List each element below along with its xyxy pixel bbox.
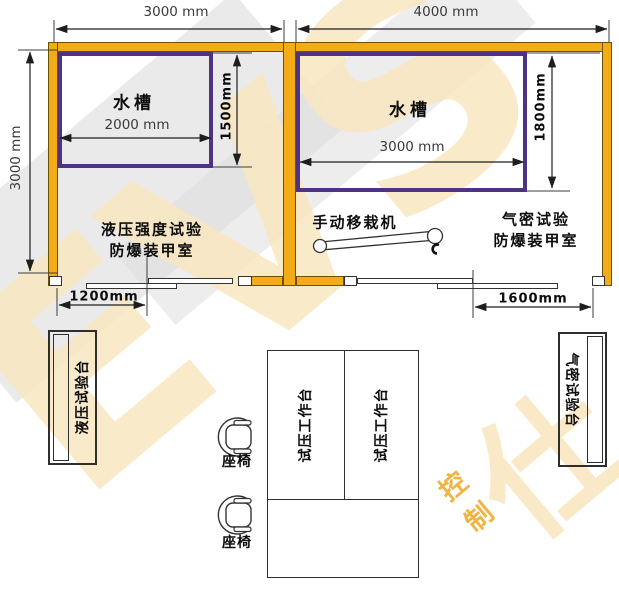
tank-left-label: 水槽 [113, 89, 155, 114]
dim-door-left: 1200mm [69, 290, 138, 305]
tank-right-dimensions [300, 53, 600, 191]
room-right-name-line1: 气密试验 [502, 209, 570, 230]
dim-door-right: 1600mm [498, 292, 567, 307]
dim-tank-right-width: 3000 mm [380, 139, 445, 155]
dim-room-left-height: 3000 mm [8, 126, 24, 191]
floor-plan-diagram: EVS 威仕 控制 [0, 0, 619, 589]
chair-bottom-label: 座椅 [222, 532, 252, 552]
door-left-dimension [57, 258, 147, 316]
worktable-right-label: 试压工作台 [371, 388, 391, 463]
worktable-left-label: 试压工作台 [295, 388, 315, 463]
bench-left-label: 液压试验台 [72, 360, 92, 435]
chair-bottom [218, 496, 251, 534]
tank-right-label: 水槽 [389, 96, 431, 121]
chair-top-label: 座椅 [222, 451, 252, 471]
dim-tank-left-width: 2000 mm [105, 117, 170, 133]
room-left-name-line1: 液压强度试验 [101, 219, 203, 240]
top-width-dimensions [54, 20, 609, 42]
room-left-name-line2: 防爆装甲室 [109, 240, 194, 261]
dim-room-left-width: 3000 mm [144, 4, 209, 20]
room-right-name-line2: 防爆装甲室 [493, 230, 578, 251]
bench-right-label: 气密试验台 [562, 353, 582, 428]
machine-label: 手动移栽机 [312, 212, 397, 233]
dim-tank-right-depth: 1800mm [534, 72, 549, 141]
dim-room-right-width: 4000 mm [414, 4, 479, 20]
dim-tank-left-depth: 1500mm [220, 71, 235, 140]
